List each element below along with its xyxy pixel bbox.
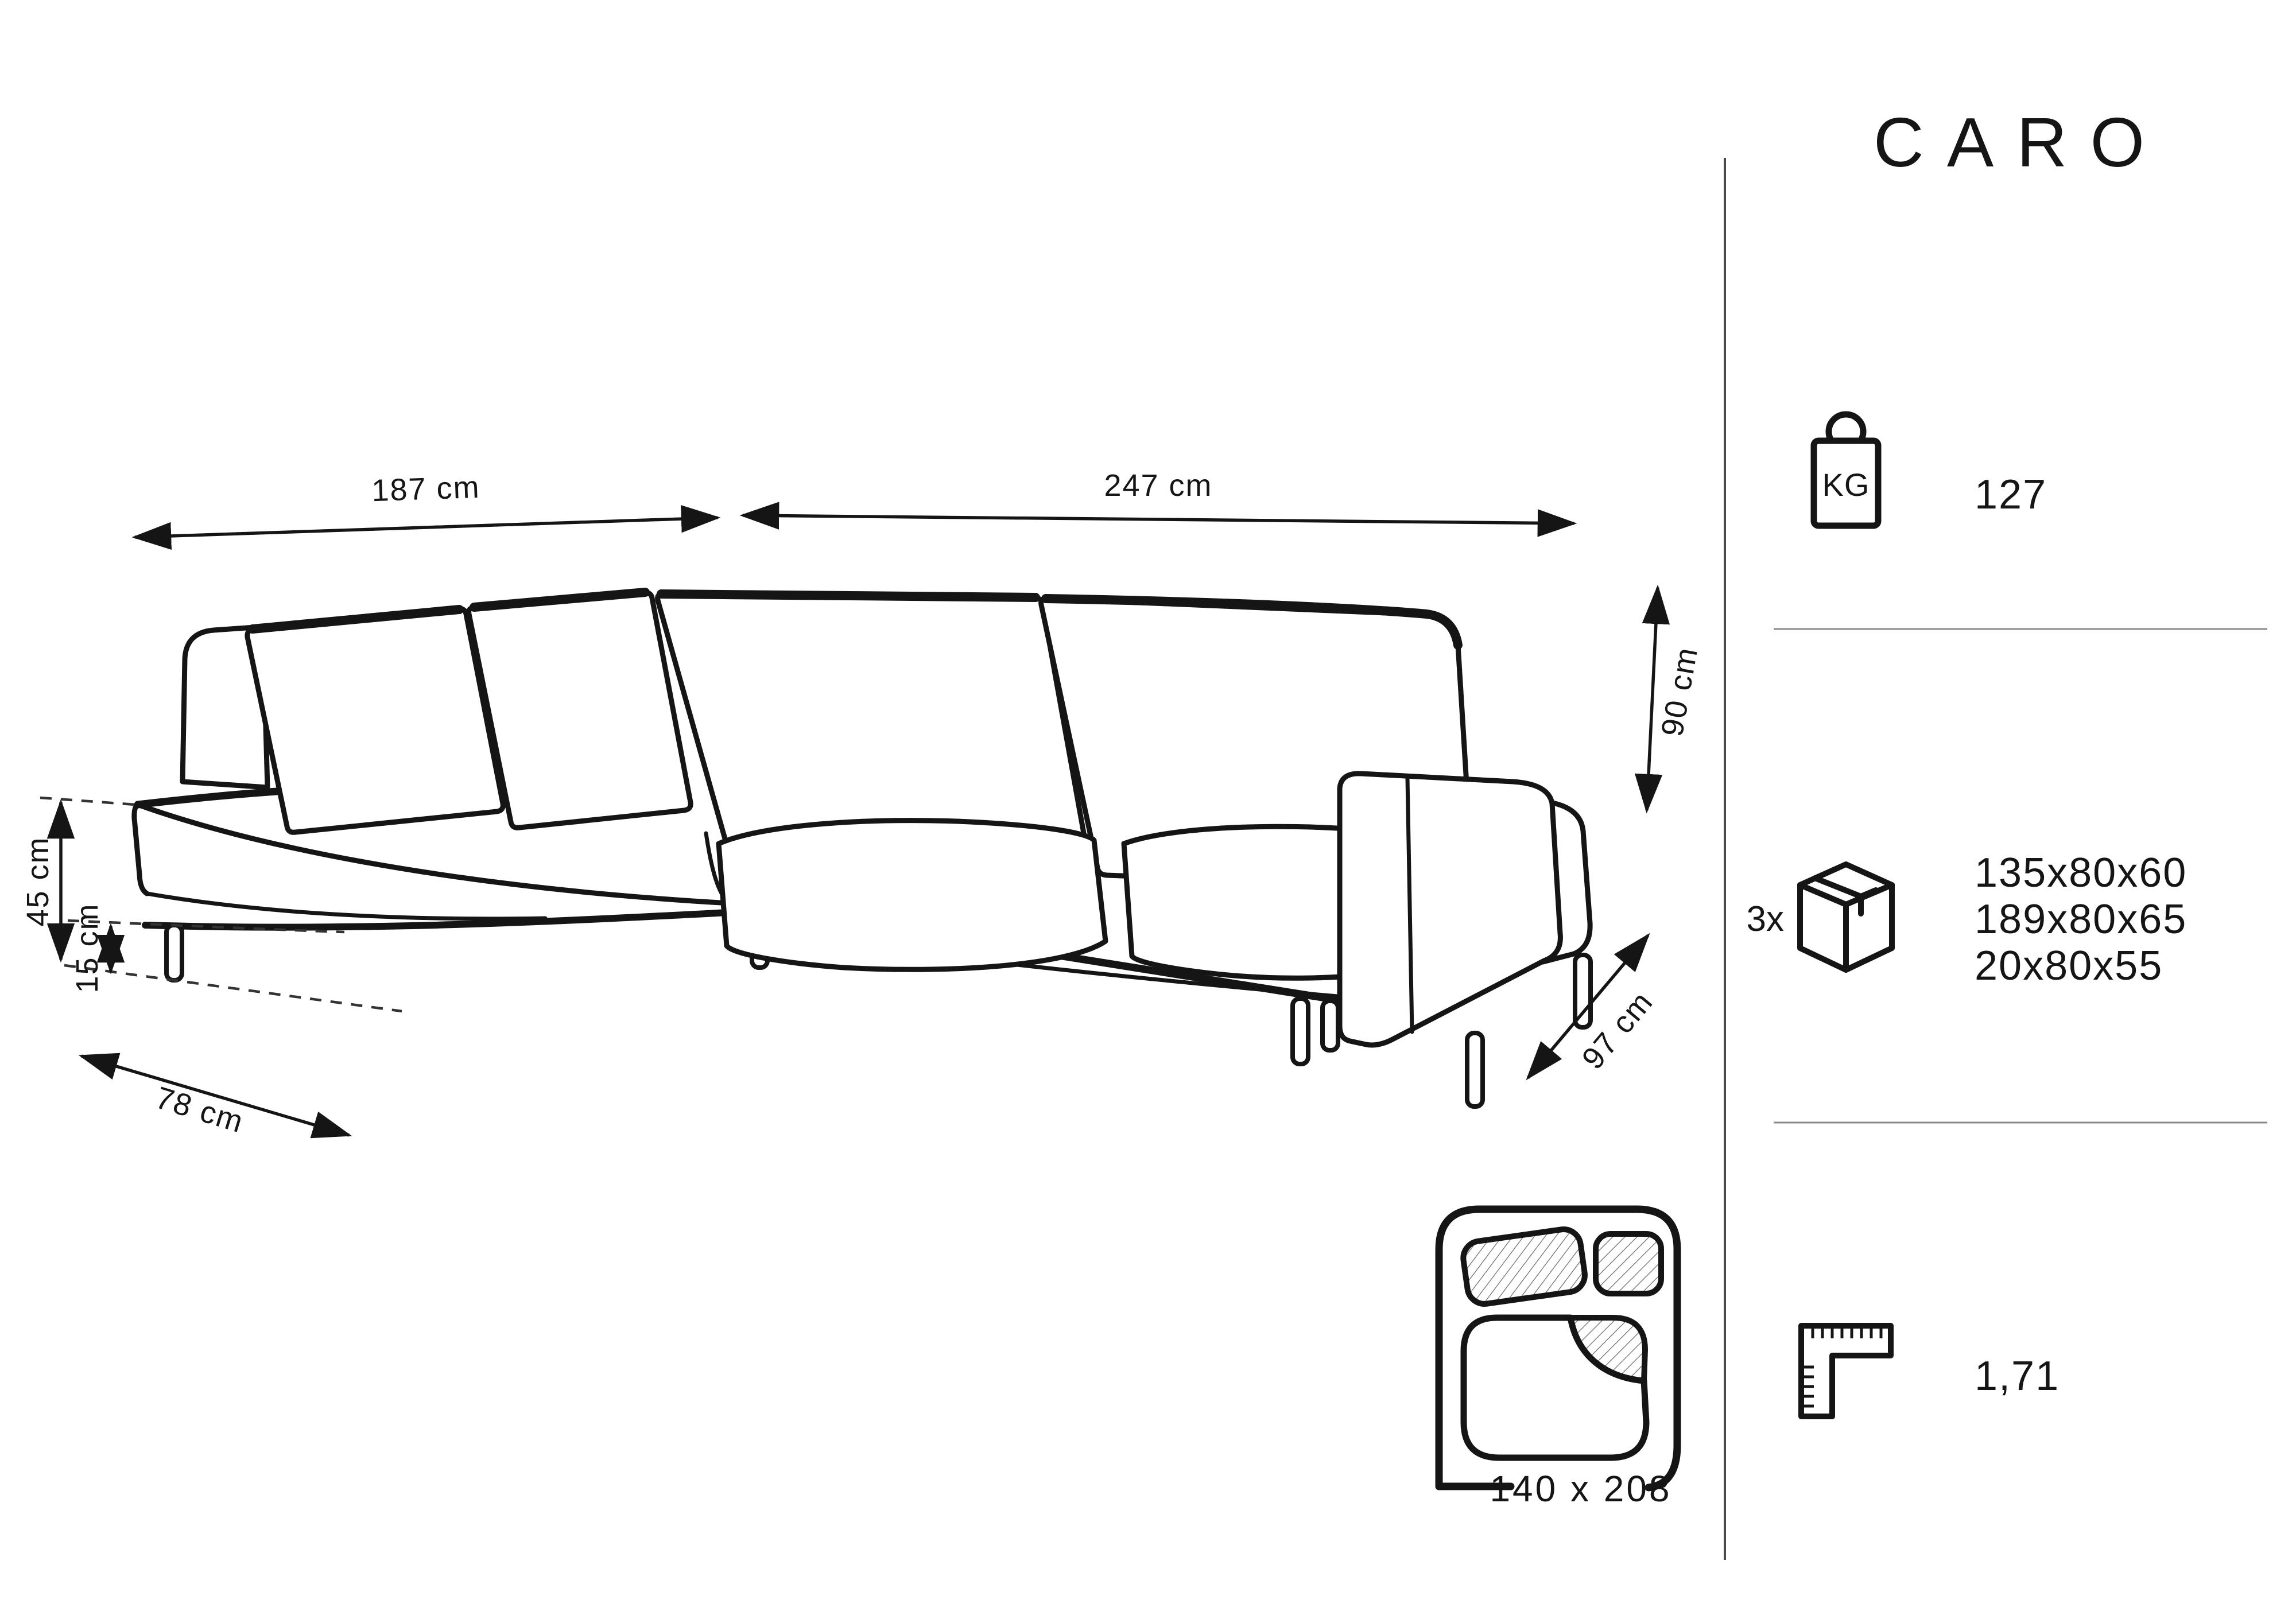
weight-row: KG 127 (1814, 414, 2047, 526)
spec-sheet: 187 cm 247 cm 90 cm 97 cm 45 cm 15 cm 78… (0, 0, 2296, 1623)
package-size: 135x80x60 (1975, 850, 2187, 896)
guide-seat-top (40, 798, 135, 805)
sleeping-area-icon (1439, 1209, 1677, 1488)
volume-row: 1,71 (1801, 1326, 2060, 1416)
arrow-back-width (135, 518, 717, 537)
kg-unit-label: KG (1822, 467, 1870, 503)
label-back-width: 187 cm (371, 470, 480, 508)
sofa-drawing (134, 592, 1591, 1106)
arrow-front-width (743, 515, 1574, 523)
packages-row: 3x 135x80x60 189x80x65 20x80x55 (1747, 850, 2188, 989)
volume-value: 1,71 (1975, 1353, 2060, 1399)
label-height: 90 cm (1655, 644, 1704, 739)
sofa-seat-cushion (719, 821, 1106, 970)
package-size: 20x80x55 (1975, 943, 2163, 989)
bed-pillow-icon (1461, 1227, 1587, 1306)
bed-pillow-icon (1596, 1234, 1661, 1294)
sofa-leg (1322, 1001, 1338, 1050)
bed-size-label: 140 x 208 (1490, 1468, 1671, 1509)
package-size: 189x80x65 (1975, 896, 2187, 942)
sofa-leg (166, 925, 182, 980)
ruler-icon (1801, 1326, 1891, 1416)
weight-value: 127 (1975, 472, 2047, 518)
sofa-leg (1575, 955, 1591, 1027)
sofa-armrest (1340, 774, 1560, 1045)
package-count: 3x (1747, 899, 1784, 939)
sofa-leg (1467, 1033, 1483, 1106)
label-leg-height: 15 cm (70, 903, 104, 993)
package-box-icon (1800, 864, 1892, 970)
sofa-chaise-block-bottom (147, 894, 545, 919)
label-seat-height: 45 cm (21, 836, 55, 926)
product-title: CARO (1874, 103, 2167, 181)
sofa-back-cushion (247, 609, 503, 832)
label-chaise-width: 78 cm (152, 1080, 248, 1139)
label-front-width: 247 cm (1104, 468, 1212, 503)
diagram-canvas: 187 cm 247 cm 90 cm 97 cm 45 cm 15 cm 78… (0, 0, 2296, 1623)
guide-floor (64, 965, 402, 1011)
sofa-leg (1293, 999, 1308, 1064)
arrow-height (1647, 588, 1658, 810)
sofa-chaise-left-edge (134, 805, 147, 894)
